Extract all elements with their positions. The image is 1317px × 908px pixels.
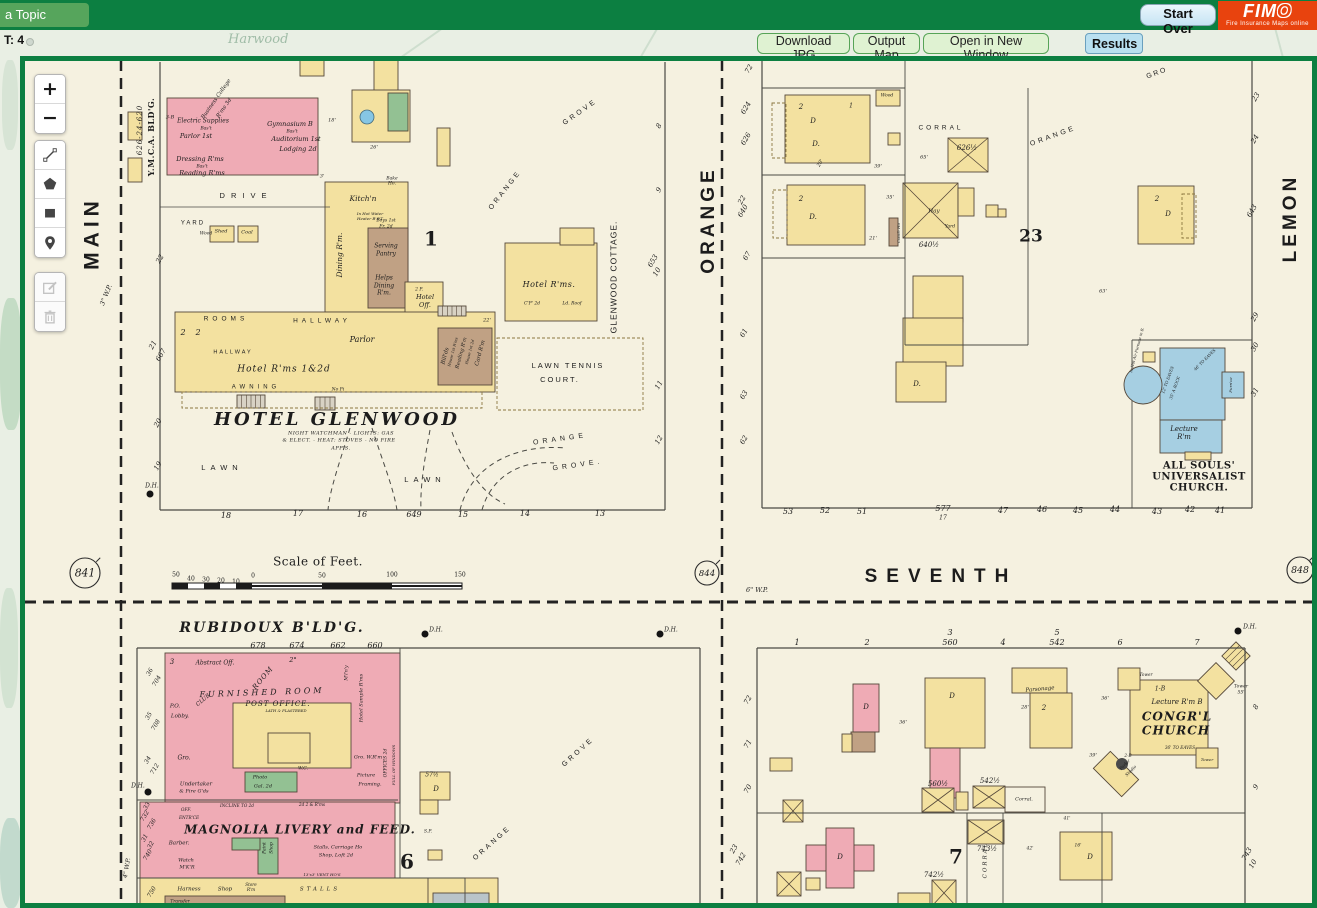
- building-outline: [1143, 352, 1155, 362]
- map-label: Gro. W.R'm: [354, 755, 382, 761]
- building: [785, 95, 870, 163]
- map-label: Reading R'ms: [178, 169, 225, 177]
- hydrant-dot: [1235, 628, 1242, 635]
- map-label: D.: [808, 213, 817, 221]
- sheet-number-tick: [1310, 556, 1312, 560]
- bullet-icon: [26, 38, 34, 46]
- map-label: 19: [152, 460, 164, 472]
- map-label: R'm: [1176, 433, 1191, 441]
- draw-polyline-button[interactable]: [35, 141, 65, 170]
- map-label: 640: [736, 203, 750, 219]
- scale-bar-segment: [392, 585, 462, 587]
- map-label: 653: [646, 253, 660, 269]
- map-label: GROVE: [561, 736, 596, 768]
- map-label: ALL SOULS': [1162, 461, 1235, 472]
- map-label: 42: [1184, 505, 1195, 514]
- building: [300, 61, 324, 76]
- map-label: 577: [935, 504, 951, 513]
- map-label: 15: [458, 510, 468, 519]
- building: [428, 850, 442, 860]
- map-label: COURT.: [540, 375, 580, 384]
- map-label: ORANGE: [472, 824, 513, 862]
- map-label: FULL OF WINDOWS: [391, 744, 396, 786]
- map-label: 6: [1117, 638, 1122, 647]
- map-label: 3': [320, 174, 325, 180]
- map-label: 2: [179, 328, 185, 337]
- map-label: 39': [874, 164, 882, 170]
- building-outline: [258, 838, 278, 874]
- building: [258, 838, 278, 874]
- map-label: 0: [251, 573, 255, 580]
- building: [842, 734, 852, 752]
- map-label: 10: [1247, 858, 1259, 870]
- edit-shapes-button: [35, 273, 65, 302]
- map-label: Transfer: [170, 899, 190, 904]
- map-label: Ld. Roof: [561, 301, 583, 307]
- map-label: POST OFFICE.: [244, 700, 310, 708]
- map-label: Hotel R'ms.: [522, 280, 576, 289]
- building-outline: [232, 838, 260, 850]
- building-outline: [986, 205, 998, 217]
- building: [777, 872, 801, 896]
- map-label: LEMON: [1280, 174, 1301, 263]
- map-label: Scale of Feet.: [273, 555, 363, 569]
- building-outline: [998, 209, 1006, 217]
- map-label: D: [1086, 853, 1093, 861]
- map-label: 626½: [957, 144, 977, 152]
- map-label: ORANGE: [488, 169, 523, 211]
- map-label: 41': [1063, 816, 1071, 822]
- building-outline: [433, 893, 489, 903]
- map-label: Tower: [1139, 672, 1153, 677]
- map-label: Ho.: [387, 181, 397, 187]
- output-map-button[interactable]: Output Map: [853, 33, 920, 54]
- map-label: 3: [170, 658, 175, 666]
- map-label: 626-24-620: [136, 105, 144, 155]
- map-label: Watch: [178, 858, 194, 864]
- trash-icon: [41, 308, 59, 326]
- map-label: Lodging 2d: [278, 145, 316, 153]
- building: [773, 190, 787, 238]
- map-label: INCLINE TO 2d: [219, 803, 254, 808]
- building-outline: [300, 61, 324, 76]
- map-label: 34: [143, 755, 153, 765]
- map-label: 667: [154, 347, 168, 363]
- sheet-number: 841: [75, 567, 96, 580]
- hydrant-dot: [657, 631, 664, 638]
- building: [958, 188, 974, 216]
- map-label: 41: [1214, 506, 1225, 515]
- map-label: 624: [739, 100, 753, 116]
- building: [374, 61, 398, 94]
- map-label: LATH & PLASTERED: [264, 708, 306, 713]
- building: [1030, 693, 1072, 748]
- building-outline: [851, 732, 875, 752]
- map-label: Yard: [945, 224, 955, 230]
- map-label: 100: [386, 572, 398, 579]
- map-label: Bas't: [285, 129, 298, 135]
- draw-marker-button[interactable]: [35, 228, 65, 257]
- building: [388, 93, 408, 131]
- map-label: 1-B: [1155, 686, 1166, 693]
- building: [787, 185, 865, 245]
- map-label: Parlor 1st: [179, 132, 213, 140]
- building: [560, 228, 594, 245]
- building-outline: [128, 158, 142, 182]
- map-label: 22': [482, 318, 491, 324]
- map-label: CHURCH.: [1170, 483, 1229, 494]
- map-label: 742: [734, 851, 748, 867]
- sanborn-map: 841844848MAINORANGELEMONSEVENTHHOTEL GLE…: [25, 61, 1312, 903]
- map-label: Serving: [374, 243, 398, 250]
- map-label: 36: [145, 667, 155, 677]
- map-label: 67: [741, 250, 753, 262]
- map-label: Pantry: [375, 251, 396, 258]
- edit-toolbar: [34, 272, 66, 332]
- map-label: 71: [742, 738, 753, 750]
- map-label: 10: [232, 579, 240, 586]
- building: [1185, 452, 1211, 460]
- map-label: 643: [1245, 203, 1259, 219]
- map-label: & Fire G'ds: [179, 789, 209, 795]
- map-label: CORRAL: [918, 125, 963, 132]
- map-label: 55': [1238, 690, 1245, 696]
- map-label: 2: [194, 328, 200, 337]
- map-label: 35': [886, 195, 894, 201]
- map-label: SEVENTH: [865, 566, 1018, 587]
- map-label: 29: [1249, 311, 1261, 324]
- building-outline: [560, 228, 594, 245]
- map-label: 2: [863, 638, 869, 647]
- map-label: 8: [654, 122, 663, 130]
- map-label: 31: [1249, 386, 1260, 398]
- map-label: 18': [328, 118, 336, 124]
- fimo-logo-text: FIMO: [1218, 1, 1317, 21]
- building-outline: [958, 188, 974, 216]
- hydrant-dot: [422, 631, 429, 638]
- map-label: 63: [738, 389, 750, 401]
- download-jpg-button[interactable]: Download JPG: [757, 33, 850, 54]
- map-label: 626: [739, 131, 753, 147]
- map-circle: [360, 110, 374, 124]
- map-label: Kitch'n: [349, 194, 377, 203]
- map-label: GROVE: [562, 98, 599, 127]
- map-label: 36': [899, 720, 907, 726]
- building-outline: [1118, 668, 1140, 690]
- map-label: D.H.: [130, 783, 145, 790]
- map-label: Electric Supplies: [176, 118, 229, 125]
- sheet-number: 844: [699, 569, 715, 579]
- map-label: ORANGE: [1029, 125, 1077, 148]
- map-label: Harness: [176, 887, 200, 893]
- map-label: 3-B: [166, 115, 175, 121]
- map-label: 28': [1020, 705, 1029, 711]
- building-outline: [1185, 452, 1211, 460]
- drive-path: [460, 447, 566, 510]
- building-outline: [1030, 693, 1072, 748]
- map-label: 36' TO EAVES: [1165, 745, 1195, 750]
- building: [932, 880, 956, 903]
- map-label: D: [862, 703, 869, 711]
- map-label: 4: [999, 638, 1005, 647]
- map-label: 542: [1049, 638, 1064, 647]
- building-outline: [772, 103, 786, 158]
- map-label: 23: [728, 843, 740, 856]
- map-label: 21: [147, 339, 159, 352]
- faded-map-shape: [2, 60, 18, 150]
- map-label: 649: [406, 510, 421, 519]
- map-label: 12: [653, 434, 665, 446]
- map-label: 2-B: [1123, 753, 1131, 758]
- map-label: 560½: [928, 780, 948, 788]
- map-label: 17: [939, 515, 947, 522]
- map-label: Shop: [218, 887, 233, 893]
- building-outline: [913, 276, 963, 322]
- building: [973, 786, 1005, 808]
- building: [1060, 832, 1112, 880]
- map-label: 63': [1099, 289, 1107, 295]
- map-label: S.P.: [424, 829, 432, 835]
- map-label: HALLWAY: [293, 318, 351, 325]
- map-label: Shop: [269, 842, 275, 854]
- map-label: 662: [330, 641, 345, 650]
- map-label: 43: [1151, 507, 1162, 516]
- map-label: 45: [1072, 506, 1083, 515]
- map-label: Dining: [373, 283, 394, 290]
- map-label: CONGR'L: [1142, 710, 1212, 724]
- building-outline: [806, 878, 820, 890]
- building: [925, 678, 985, 748]
- map-label: 36': [1101, 696, 1109, 702]
- map-label: 57½: [425, 772, 439, 779]
- building-outline: [888, 133, 900, 145]
- map-label: Dining R'm.: [335, 233, 344, 279]
- map-label: 53: [783, 507, 793, 516]
- building-outline: [1093, 751, 1138, 796]
- draw-polygon-button[interactable]: [35, 170, 65, 199]
- map-label: 14: [520, 509, 530, 518]
- map-label: 21': [868, 236, 877, 242]
- map-label: HOTEL GLENWOOD: [213, 409, 460, 430]
- map-label: Corral.: [1015, 797, 1033, 803]
- building-outline: [787, 185, 865, 245]
- map-label: D.H.: [428, 627, 443, 634]
- map-label: 44: [1109, 505, 1120, 514]
- map-label: 13: [595, 509, 605, 518]
- map-label: 2: [1041, 704, 1047, 712]
- map-label: 42': [1026, 846, 1034, 852]
- building: [851, 732, 875, 752]
- polygon-icon: [41, 175, 59, 193]
- edit-icon: [41, 278, 59, 296]
- map-label: 2 P.: [414, 287, 423, 293]
- building: [770, 758, 792, 771]
- map-label: 1: [424, 227, 438, 251]
- map-label: P.O.: [169, 704, 181, 710]
- map-label: 61: [738, 327, 749, 339]
- map-canvas[interactable]: 841844848MAINORANGELEMONSEVENTHHOTEL GLE…: [25, 61, 1312, 903]
- map-label: Parlor: [349, 335, 376, 344]
- map-label: 23: [1019, 227, 1043, 247]
- map-label: 704: [151, 674, 163, 688]
- map-label: LAWN: [201, 463, 242, 472]
- zoom-in-button[interactable]: +: [35, 75, 65, 104]
- building: [1118, 668, 1140, 690]
- map-label: 150: [454, 572, 466, 579]
- map-label: Furn'ce: [1228, 377, 1233, 394]
- top-navbar: a Topic Start Over FIMO Fire Insurance M…: [0, 0, 1317, 30]
- map-label: LAWN TENNIS: [532, 361, 605, 370]
- map-label: 640½: [919, 241, 939, 249]
- building-outline: [842, 734, 852, 752]
- map-label: 560: [942, 638, 957, 647]
- building: [237, 395, 265, 408]
- building-outline: [1060, 832, 1112, 880]
- building-outline: [956, 792, 968, 810]
- map-label: 708: [150, 718, 162, 732]
- map-label: Framing.: [357, 782, 382, 788]
- building: [232, 838, 260, 850]
- map-label: Boys 1st: [375, 218, 395, 224]
- map-label: M'l'n'y: [344, 665, 350, 682]
- building: [896, 362, 946, 402]
- drive-path: [452, 432, 505, 504]
- map-label: 660: [367, 641, 382, 650]
- building-outline: [428, 850, 442, 860]
- topic-tab[interactable]: a Topic: [0, 3, 89, 27]
- fimo-logo[interactable]: FIMO Fire Insurance Maps online: [1218, 1, 1317, 30]
- map-label: 7: [1194, 638, 1200, 647]
- scale-bar-segment: [322, 583, 392, 589]
- map-label: 16: [357, 510, 367, 519]
- map-label: GLENWOOD COTTAGE.: [608, 221, 618, 334]
- map-label: 3: [947, 628, 952, 637]
- delete-shapes-button: [35, 302, 65, 331]
- start-over-button[interactable]: Start Over: [1140, 4, 1216, 26]
- map-label: OFFICES 2d: [383, 749, 389, 778]
- map-label: UNIVERSALIST: [1152, 472, 1246, 483]
- map-label: 30: [1249, 341, 1261, 353]
- map-label: 9: [1251, 783, 1260, 791]
- map-label: Coach Ho: [896, 222, 901, 242]
- map-label: Hotel Sample R'ms: [359, 673, 365, 723]
- building-outline: [896, 362, 946, 402]
- drive-path: [421, 430, 430, 510]
- map-label: D: [809, 117, 816, 125]
- draw-rectangle-button[interactable]: [35, 199, 65, 228]
- map-label: 70: [742, 783, 754, 795]
- building: [437, 128, 450, 166]
- map-label: NIGHT WATCHMAN - LIGHTS: GAS: [287, 431, 394, 437]
- map-label: 52: [820, 506, 830, 515]
- map-label: LAWN: [404, 475, 445, 484]
- map-label: 2°: [288, 656, 296, 664]
- zoom-out-button[interactable]: −: [35, 104, 65, 133]
- map-label: GRO: [1146, 66, 1169, 80]
- sheet-indicator: T: 4: [4, 33, 24, 47]
- map-label: Paint: [262, 842, 268, 855]
- building: [772, 103, 786, 158]
- map-label: Shop, Loft 2d: [319, 853, 353, 859]
- building: [128, 158, 142, 182]
- map-label: 5: [1054, 628, 1059, 637]
- map-label: 16': [1075, 843, 1082, 849]
- zoom-control: + −: [34, 74, 66, 134]
- map-label: 3" W.P.: [98, 283, 114, 306]
- map-label: 40: [187, 576, 195, 583]
- map-label: 542½: [980, 777, 1000, 785]
- map-label: 62: [738, 434, 750, 446]
- fimo-logo-subtitle: Fire Insurance Maps online: [1218, 21, 1317, 27]
- map-frame: 841844848MAINORANGELEMONSEVENTHHOTEL GLE…: [20, 56, 1317, 908]
- building: [438, 306, 466, 316]
- building: [420, 800, 438, 814]
- building: [903, 318, 963, 366]
- building-outline: [903, 318, 963, 366]
- map-label: YARD: [181, 221, 205, 227]
- map-label: 2: [798, 103, 804, 111]
- map-label: 24: [1249, 133, 1261, 146]
- map-label: 678: [250, 641, 265, 650]
- building-outline: [770, 758, 792, 771]
- building: [783, 800, 803, 822]
- map-label: Fr. 2d: [378, 224, 393, 230]
- open-new-window-button[interactable]: Open in New Window: [923, 33, 1049, 54]
- map-label: Undertaker: [180, 782, 213, 788]
- map-label: 4" W.P.: [122, 857, 133, 879]
- map-label: Shed: [215, 229, 228, 235]
- map-label: D.: [912, 380, 921, 388]
- results-button[interactable]: Results: [1085, 33, 1143, 54]
- map-label: 1: [849, 103, 853, 110]
- building: [1222, 372, 1244, 398]
- map-label: Lecture R'm B: [1151, 698, 1203, 706]
- map-label: D: [1164, 210, 1171, 218]
- map-label: Helps: [374, 275, 393, 282]
- map-label: Gro.: [177, 755, 190, 762]
- building: [433, 893, 489, 903]
- building: [1143, 352, 1155, 362]
- map-label: 50: [318, 573, 326, 580]
- map-label: 72: [743, 63, 755, 75]
- map-label: 18: [221, 511, 231, 520]
- building: [1093, 751, 1138, 796]
- scale-bar-segment: [172, 583, 188, 589]
- map-label: Hotel: [415, 293, 434, 301]
- map-label: Abstract Off.: [195, 660, 235, 667]
- map-label: 13'x3' VENT HO'S: [303, 872, 340, 877]
- map-label: Hotel R'ms 1&2d: [236, 365, 330, 375]
- building: [922, 788, 954, 812]
- building-outline: [420, 800, 438, 814]
- map-label: CORRAL: [983, 842, 989, 879]
- map-label: Photo: [252, 775, 268, 781]
- map-label: 17: [293, 509, 304, 518]
- map-label: Y.M.C.A. BLD'G.: [146, 98, 156, 178]
- building: [913, 276, 963, 322]
- scale-bar-segment: [252, 585, 322, 587]
- rectangle-icon: [41, 204, 59, 222]
- building-outline: [898, 893, 930, 903]
- sheet-number: 848: [1291, 565, 1309, 576]
- map-label: No Fi: [331, 387, 345, 393]
- map-label: RUBIDOUX B'LD'G.: [178, 620, 364, 636]
- map-label: D: [432, 785, 439, 793]
- building: [898, 893, 930, 903]
- map-label: 9: [654, 186, 663, 194]
- marker-icon: [41, 234, 59, 252]
- map-label: ORANGE: [698, 166, 719, 273]
